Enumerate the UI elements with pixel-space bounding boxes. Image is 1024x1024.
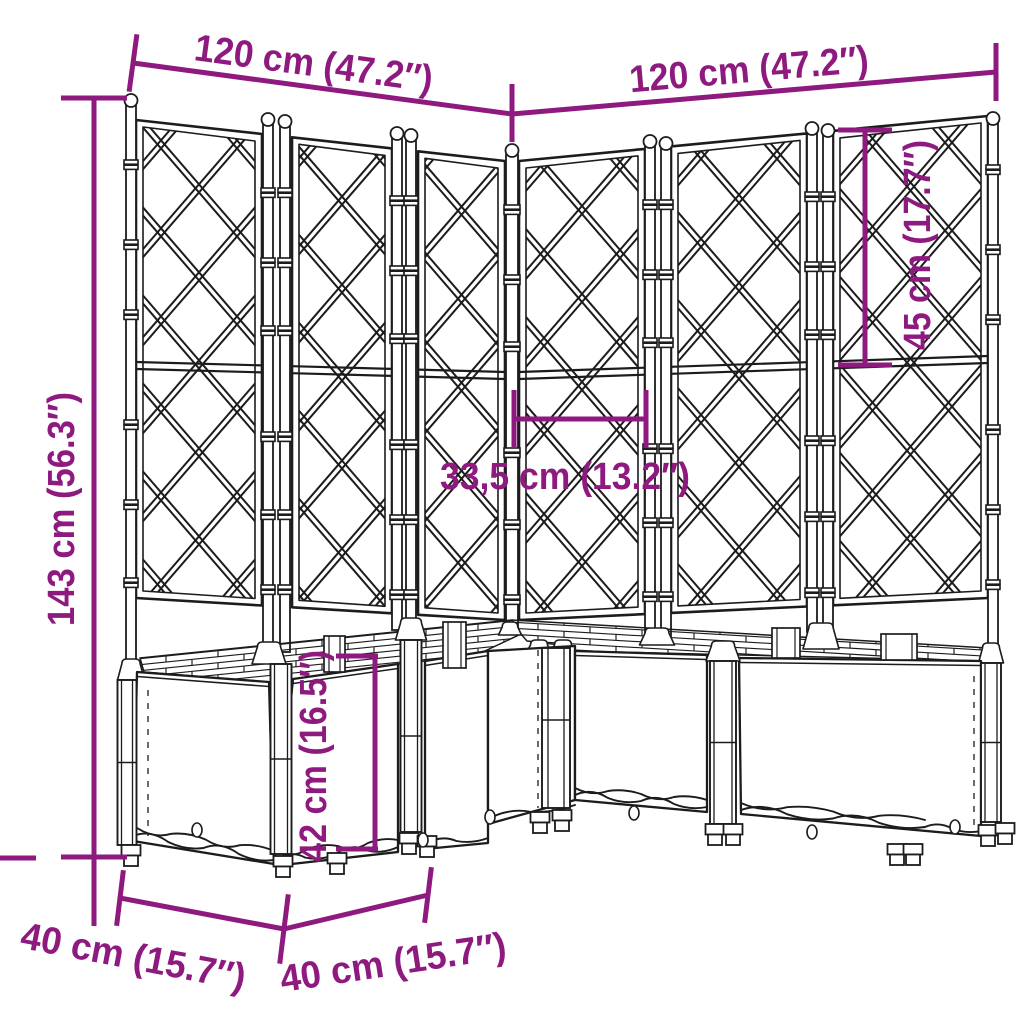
svg-text:143 cm (56.3″): 143 cm (56.3″) (41, 392, 83, 626)
svg-text:42 cm (16.5″): 42 cm (16.5″) (293, 650, 335, 862)
svg-text:33,5 cm (13.2″): 33,5 cm (13.2″) (440, 456, 690, 498)
svg-text:45 cm (17.7″): 45 cm (17.7″) (897, 140, 939, 350)
